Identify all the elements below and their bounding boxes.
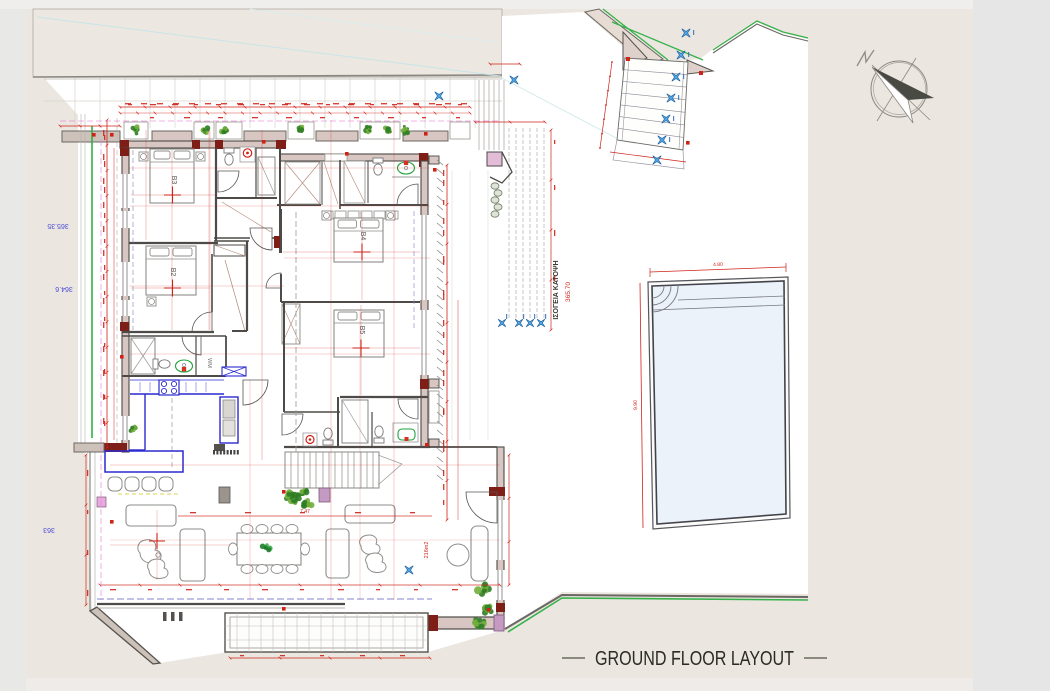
svg-text:216m2: 216m2 [424, 542, 430, 559]
svg-text:9.90: 9.90 [633, 400, 639, 410]
svg-text:365.35: 365.35 [47, 222, 69, 229]
svg-text:365.70: 365.70 [565, 282, 572, 302]
svg-text:363: 363 [43, 526, 55, 533]
svg-text:4.80: 4.80 [713, 262, 723, 268]
svg-text:B3: B3 [170, 176, 177, 185]
svg-text:B4: B4 [359, 232, 366, 241]
svg-text:WM: WM [206, 358, 212, 368]
svg-text:B2: B2 [169, 268, 176, 277]
svg-text:GROUND FLOOR LAYOUT: GROUND FLOOR LAYOUT [595, 648, 794, 670]
svg-text:B5: B5 [358, 326, 365, 335]
svg-text:364.6: 364.6 [55, 285, 73, 292]
svg-text:ΙΣΟΓΕΙΑ ΚΑΤΟΨΗ: ΙΣΟΓΕΙΑ ΚΑΤΟΨΗ [553, 260, 560, 319]
